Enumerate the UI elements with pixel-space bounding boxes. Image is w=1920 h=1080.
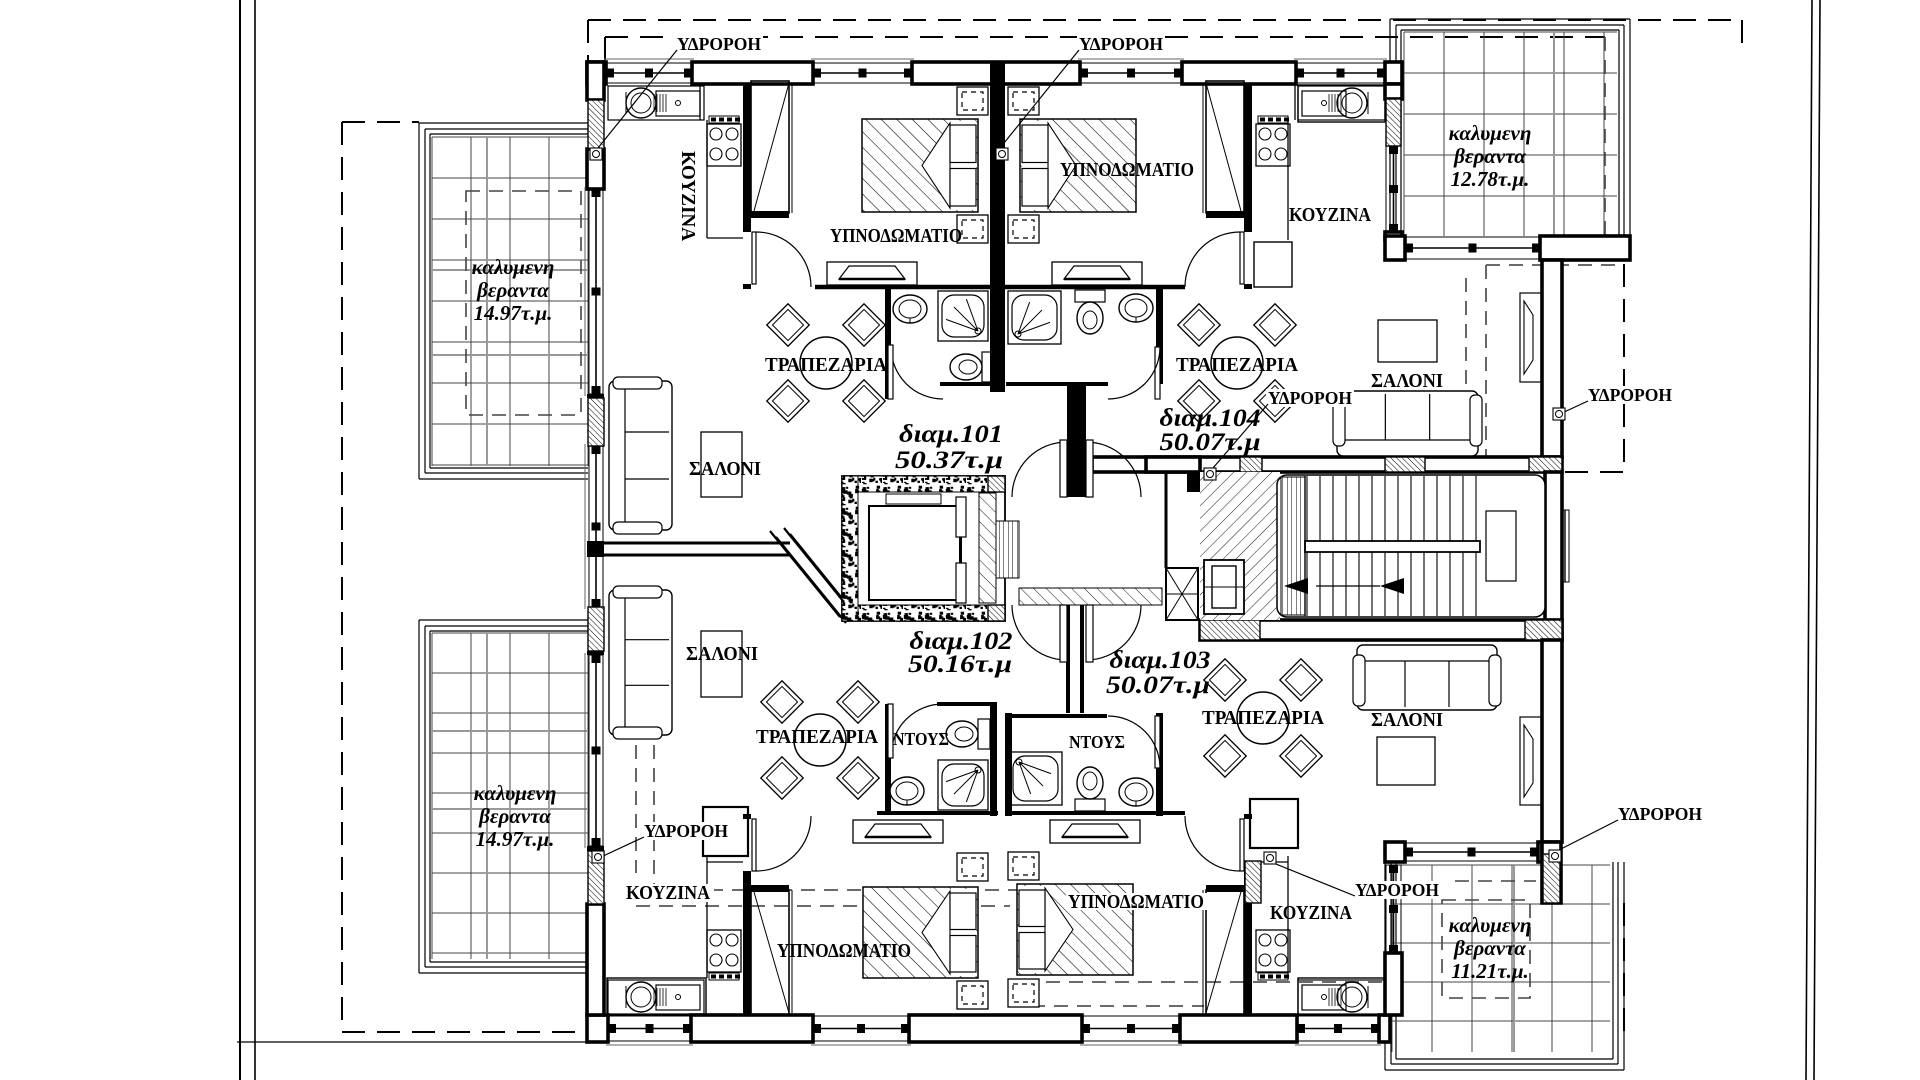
svg-text:ΚΟΥΖΙΝΑ: ΚΟΥΖΙΝΑ bbox=[677, 151, 699, 242]
svg-text:ΝΤΟΥΣ: ΝΤΟΥΣ bbox=[893, 729, 949, 749]
svg-text:ΥΠΝΟΔΩΜΑΤΙΟ: ΥΠΝΟΔΩΜΑΤΙΟ bbox=[777, 940, 911, 962]
svg-text:11.21τ.μ.: 11.21τ.μ. bbox=[1451, 959, 1529, 983]
svg-text:ΥΠΝΟΔΩΜΑΤΙΟ: ΥΠΝΟΔΩΜΑΤΙΟ bbox=[830, 225, 962, 247]
svg-text:ΚΟΥΖΙΝΑ: ΚΟΥΖΙΝΑ bbox=[1270, 902, 1352, 924]
svg-text:ΣΑΛΟΝΙ: ΣΑΛΟΝΙ bbox=[689, 458, 761, 480]
svg-text:διαμ.101: διαμ.101 bbox=[899, 421, 1003, 448]
svg-text:ΤΡΑΠΕΖΑΡΙΑ: ΤΡΑΠΕΖΑΡΙΑ bbox=[1202, 707, 1325, 729]
svg-text:14.97τ.μ.: 14.97τ.μ. bbox=[474, 301, 553, 325]
svg-text:ΥΔΡΟΡΟΗ: ΥΔΡΟΡΟΗ bbox=[1355, 880, 1439, 900]
svg-text:50.07τ.μ: 50.07τ.μ bbox=[1160, 429, 1261, 456]
svg-text:ΥΔΡΟΡΟΗ: ΥΔΡΟΡΟΗ bbox=[1079, 34, 1163, 54]
svg-text:ΚΟΥΖΙΝΑ: ΚΟΥΖΙΝΑ bbox=[1289, 204, 1371, 226]
svg-text:50.16τ.μ: 50.16τ.μ bbox=[908, 651, 1012, 678]
svg-text:καλυμενη: καλυμενη bbox=[1449, 913, 1532, 937]
svg-text:ΤΡΑΠΕΖΑΡΙΑ: ΤΡΑΠΕΖΑΡΙΑ bbox=[765, 354, 888, 376]
svg-text:καλυμενη: καλυμενη bbox=[474, 781, 557, 805]
svg-text:ΣΑΛΟΝΙ: ΣΑΛΟΝΙ bbox=[1371, 709, 1443, 731]
svg-text:14.97τ.μ.: 14.97τ.μ. bbox=[476, 827, 555, 851]
svg-text:50.07τ.μ: 50.07τ.μ bbox=[1106, 672, 1210, 699]
svg-text:ΚΟΥΖΙΝΑ: ΚΟΥΖΙΝΑ bbox=[626, 882, 710, 904]
svg-text:ΝΤΟΥΣ: ΝΤΟΥΣ bbox=[1069, 732, 1125, 752]
svg-text:καλυμενη: καλυμενη bbox=[1449, 121, 1532, 145]
svg-text:διαμ.103: διαμ.103 bbox=[1110, 647, 1211, 674]
svg-text:50.37τ.μ: 50.37τ.μ bbox=[895, 447, 1003, 474]
svg-text:βεραντα: βεραντα bbox=[476, 278, 549, 302]
svg-text:12.78τ.μ.: 12.78τ.μ. bbox=[1451, 167, 1530, 191]
svg-text:βεραντα: βεραντα bbox=[1453, 144, 1526, 168]
svg-text:καλυμενη: καλυμενη bbox=[472, 255, 555, 279]
svg-text:ΥΔΡΟΡΟΗ: ΥΔΡΟΡΟΗ bbox=[1268, 388, 1352, 408]
svg-text:ΣΑΛΟΝΙ: ΣΑΛΟΝΙ bbox=[1371, 370, 1443, 392]
svg-text:ΥΔΡΟΡΟΗ: ΥΔΡΟΡΟΗ bbox=[1618, 804, 1702, 824]
svg-text:ΤΡΑΠΕΖΑΡΙΑ: ΤΡΑΠΕΖΑΡΙΑ bbox=[756, 726, 879, 748]
svg-text:βεραντα: βεραντα bbox=[1453, 936, 1526, 960]
svg-text:βεραντα: βεραντα bbox=[478, 804, 551, 828]
svg-text:ΣΑΛΟΝΙ: ΣΑΛΟΝΙ bbox=[686, 643, 758, 665]
svg-text:ΤΡΑΠΕΖΑΡΙΑ: ΤΡΑΠΕΖΑΡΙΑ bbox=[1176, 354, 1299, 376]
svg-text:ΥΔΡΟΡΟΗ: ΥΔΡΟΡΟΗ bbox=[677, 34, 761, 54]
svg-text:ΥΠΝΟΔΩΜΑΤΙΟ: ΥΠΝΟΔΩΜΑΤΙΟ bbox=[1060, 159, 1194, 181]
svg-text:ΥΔΡΟΡΟΗ: ΥΔΡΟΡΟΗ bbox=[644, 821, 728, 841]
svg-text:ΥΔΡΟΡΟΗ: ΥΔΡΟΡΟΗ bbox=[1588, 385, 1672, 405]
svg-text:διαμ.104: διαμ.104 bbox=[1160, 405, 1261, 432]
svg-text:ΥΠΝΟΔΩΜΑΤΙΟ: ΥΠΝΟΔΩΜΑΤΙΟ bbox=[1068, 891, 1204, 913]
